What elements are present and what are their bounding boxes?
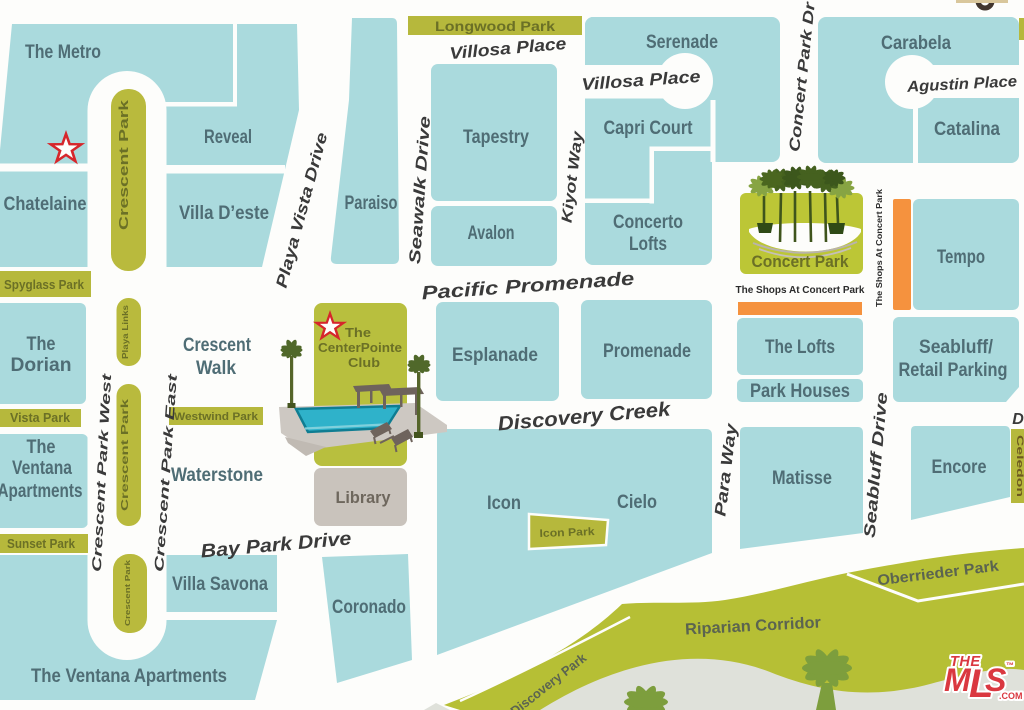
svg-text:The Lofts: The Lofts [765, 337, 835, 358]
svg-text:Seabluff/: Seabluff/ [919, 337, 994, 358]
svg-text:Promenade: Promenade [603, 341, 691, 362]
svg-text:Icon Park: Icon Park [539, 526, 595, 540]
svg-text:Apartments: Apartments [0, 481, 83, 502]
svg-text:Sunset Park: Sunset Park [7, 537, 75, 551]
svg-text:Matisse: Matisse [772, 468, 832, 489]
svg-text:Crescent: Crescent [183, 335, 252, 356]
svg-text:Chatelaine: Chatelaine [4, 194, 87, 215]
svg-text:Westwind Park: Westwind Park [174, 411, 259, 423]
svg-text:Playa Links: Playa Links [120, 305, 130, 359]
svg-text:Villa D’este: Villa D’este [179, 203, 269, 224]
svg-text:Vista Park: Vista Park [10, 411, 70, 425]
svg-text:Coronado: Coronado [332, 597, 406, 618]
svg-text:The Shops At Concert Park: The Shops At Concert Park [736, 284, 865, 296]
svg-text:Celedon: Celedon [1015, 435, 1024, 497]
svg-text:The: The [27, 334, 56, 355]
svg-text:M: M [944, 662, 972, 698]
svg-text:Icon: Icon [487, 493, 521, 514]
svg-text:Crescent Park: Crescent Park [116, 99, 131, 230]
svg-text:The Shops At Concert Park: The Shops At Concert Park [875, 189, 884, 307]
svg-text:Concerto: Concerto [613, 212, 683, 233]
svg-text:Dorian: Dorian [11, 355, 72, 376]
svg-text:Crescent Park: Crescent Park [123, 559, 132, 626]
svg-text:Encore: Encore [932, 457, 987, 478]
svg-text:Reveal: Reveal [204, 127, 252, 148]
svg-text:Longwood Park: Longwood Park [435, 18, 555, 34]
svg-text:Avalon: Avalon [468, 223, 515, 244]
svg-text:Tempo: Tempo [937, 247, 985, 268]
svg-text:Lofts: Lofts [629, 234, 667, 255]
svg-text:Park Houses: Park Houses [750, 381, 850, 402]
svg-text:The Ventana Apartments: The Ventana Apartments [31, 666, 227, 687]
svg-text:The Metro: The Metro [25, 42, 101, 63]
svg-text:Waterstone: Waterstone [171, 465, 263, 486]
svg-text:Walk: Walk [196, 358, 236, 379]
svg-text:.COM: .COM [999, 691, 1023, 701]
svg-text:CenterPointe: CenterPointe [318, 340, 402, 355]
svg-text:Library: Library [336, 488, 392, 507]
svg-text:D: D [1012, 411, 1024, 428]
svg-text:Club: Club [348, 355, 380, 370]
svg-text:Cielo: Cielo [617, 492, 657, 513]
svg-text:Crescent Park: Crescent Park [119, 399, 131, 511]
svg-text:Villa Savona: Villa Savona [172, 574, 268, 595]
svg-text:Catalina: Catalina [934, 119, 1000, 140]
svg-text:Tapestry: Tapestry [463, 127, 529, 148]
svg-text:Concert Park: Concert Park [752, 252, 849, 271]
svg-text:The: The [27, 437, 56, 458]
svg-text:The: The [345, 325, 371, 340]
svg-text:Esplanade: Esplanade [452, 345, 538, 366]
svg-text:Paraiso: Paraiso [345, 193, 398, 214]
svg-text:Carabela: Carabela [881, 33, 951, 54]
svg-text:Capri Court: Capri Court [604, 118, 694, 139]
svg-text:Spyglass Park: Spyglass Park [4, 278, 84, 292]
svg-text:™: ™ [1006, 661, 1014, 670]
svg-text:Serenade: Serenade [646, 32, 718, 53]
svg-text:Ventana: Ventana [12, 458, 72, 479]
svg-text:Retail Parking: Retail Parking [899, 360, 1008, 381]
